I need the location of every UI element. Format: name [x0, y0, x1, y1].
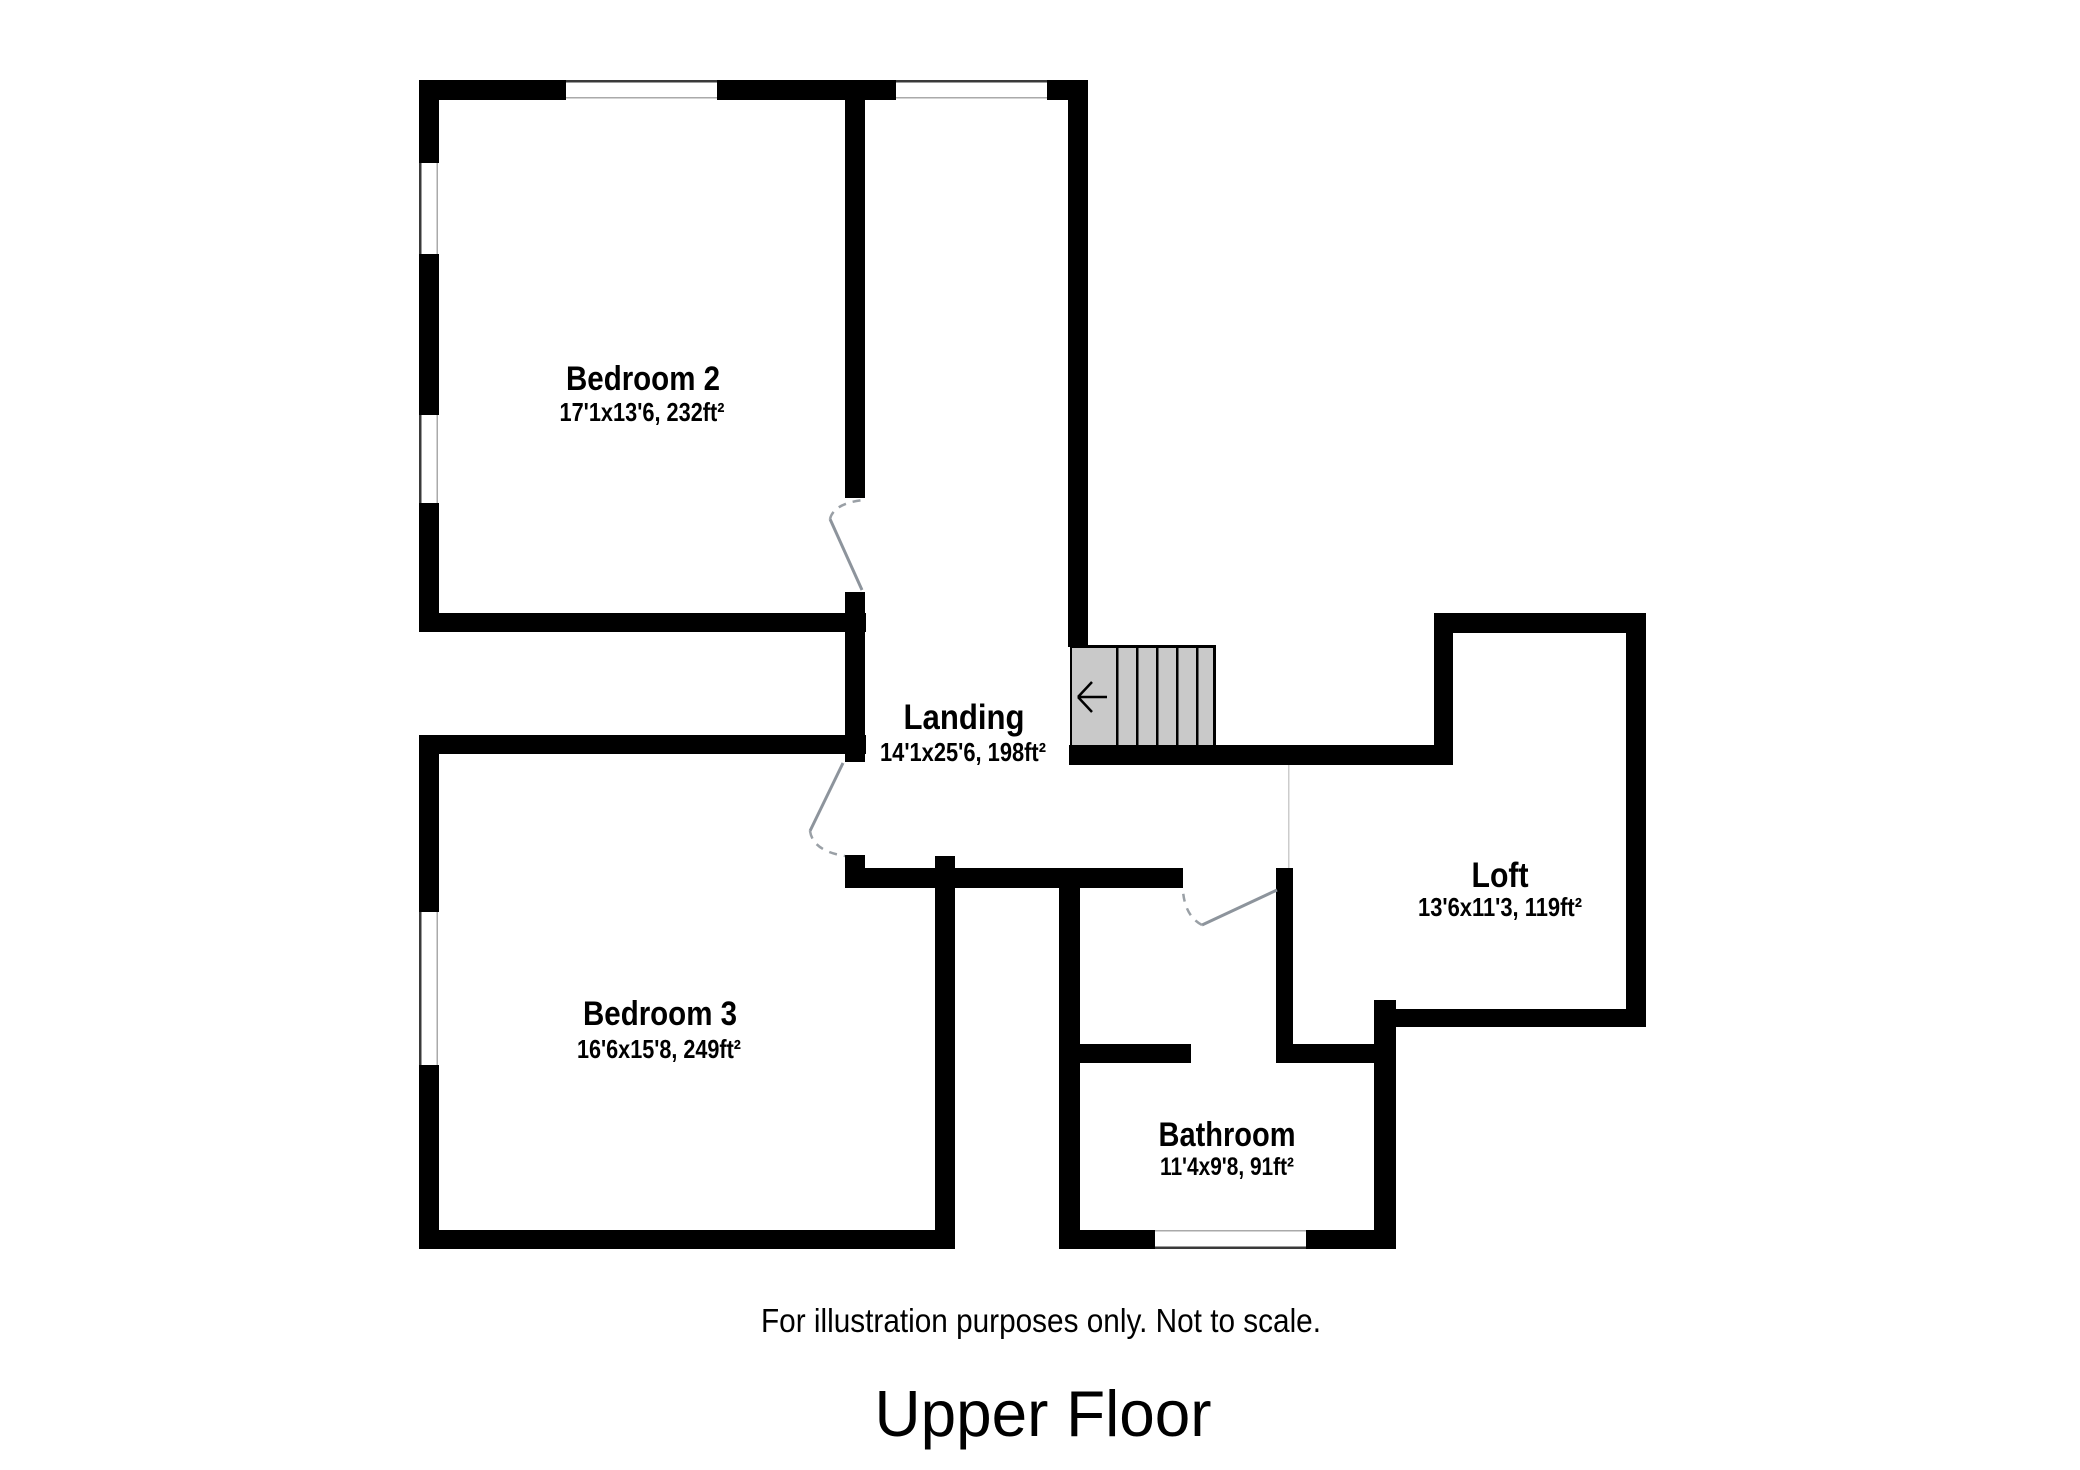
svg-text:Bedroom 3: Bedroom 3: [583, 995, 737, 1033]
svg-text:16'6x15'8, 249ft²: 16'6x15'8, 249ft²: [577, 1034, 741, 1064]
svg-text:Bathroom: Bathroom: [1159, 1116, 1296, 1154]
svg-text:13'6x11'3, 119ft²: 13'6x11'3, 119ft²: [1418, 892, 1582, 922]
svg-text:Bedroom 2: Bedroom 2: [566, 360, 720, 398]
svg-text:17'1x13'6, 232ft²: 17'1x13'6, 232ft²: [560, 397, 725, 427]
svg-text:Landing: Landing: [904, 698, 1025, 737]
svg-text:11'4x9'8, 91ft²: 11'4x9'8, 91ft²: [1160, 1153, 1294, 1181]
svg-text:Upper Floor: Upper Floor: [875, 1377, 1212, 1450]
svg-text:14'1x25'6, 198ft²: 14'1x25'6, 198ft²: [880, 737, 1046, 767]
svg-text:For illustration purposes only: For illustration purposes only. Not to s…: [761, 1302, 1321, 1339]
svg-text:Loft: Loft: [1472, 856, 1529, 895]
